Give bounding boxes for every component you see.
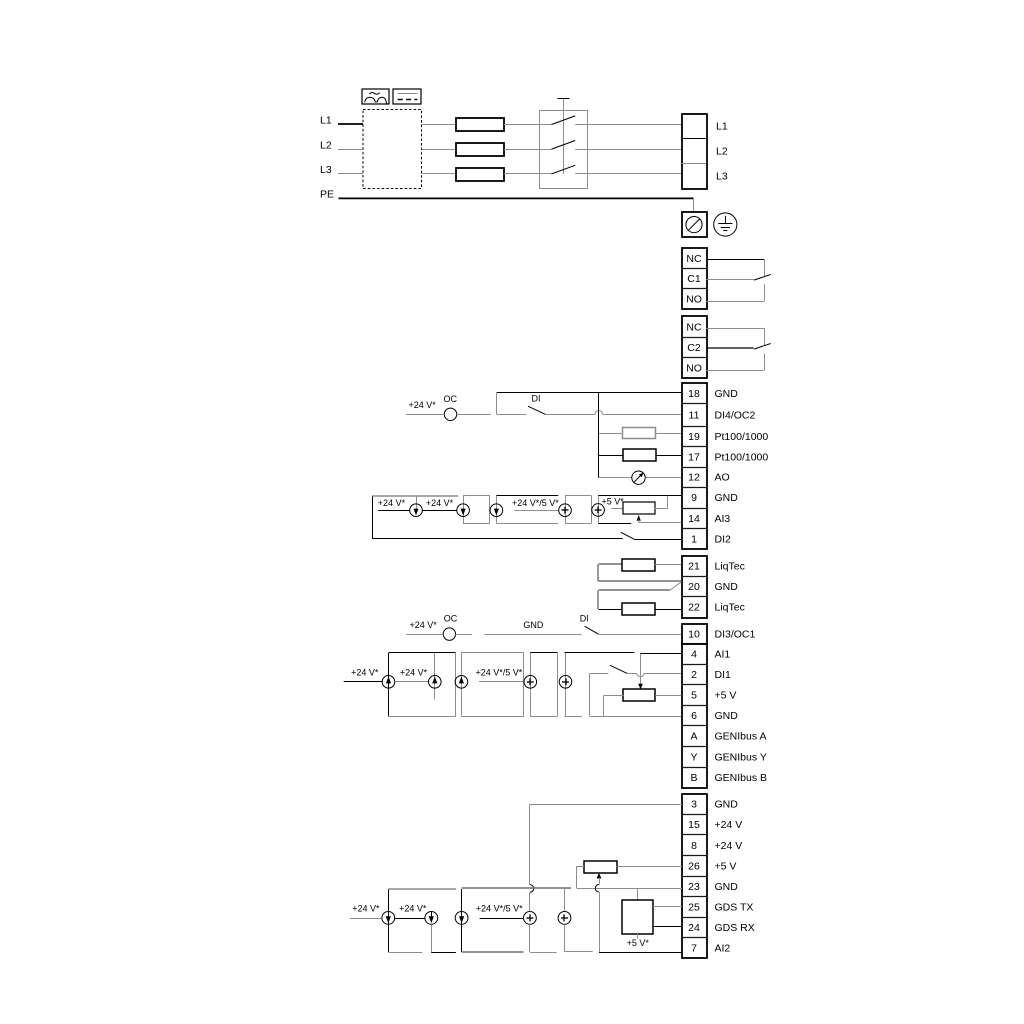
svg-text:OC: OC	[444, 394, 458, 404]
svg-text:A: A	[690, 731, 697, 743]
svg-text:+24 V*/5 V*: +24 V*/5 V*	[476, 668, 523, 678]
svg-text:5: 5	[691, 690, 697, 702]
svg-text:6: 6	[691, 710, 697, 722]
svg-text:L2: L2	[320, 139, 332, 151]
svg-text:18: 18	[688, 388, 700, 400]
svg-text:PE: PE	[320, 189, 334, 201]
svg-text:GND: GND	[715, 492, 739, 504]
svg-text:DI3/OC1: DI3/OC1	[715, 628, 756, 640]
svg-text:+24 V: +24 V	[715, 819, 743, 831]
svg-text:C2: C2	[687, 342, 701, 354]
svg-text:+24 V*: +24 V*	[400, 668, 428, 678]
svg-text:GND: GND	[715, 710, 739, 722]
svg-text:DI1: DI1	[715, 669, 732, 681]
svg-text:GND: GND	[715, 799, 739, 811]
svg-text:+5 V: +5 V	[715, 860, 737, 872]
svg-text:15: 15	[688, 819, 700, 831]
svg-text:7: 7	[691, 942, 697, 954]
svg-text:+24 V: +24 V	[715, 840, 743, 852]
svg-text:DI: DI	[532, 394, 541, 404]
svg-text:GENIbus A: GENIbus A	[715, 731, 767, 743]
svg-text:+5 V: +5 V	[715, 690, 737, 702]
svg-text:+24 V*/5 V*: +24 V*/5 V*	[512, 498, 559, 508]
svg-text:AI1: AI1	[715, 649, 731, 661]
svg-text:NC: NC	[686, 253, 702, 265]
svg-text:+24 V*: +24 V*	[351, 668, 379, 678]
svg-text:AO: AO	[715, 472, 730, 484]
svg-text:25: 25	[688, 901, 700, 913]
svg-text:NC: NC	[686, 321, 702, 333]
svg-text:8: 8	[691, 840, 697, 852]
svg-text:L1: L1	[320, 115, 332, 127]
svg-text:3: 3	[691, 799, 697, 811]
svg-text:10: 10	[688, 628, 700, 640]
svg-text:23: 23	[688, 881, 700, 893]
svg-text:Y: Y	[690, 751, 697, 763]
svg-text:22: 22	[688, 602, 700, 614]
svg-text:LiqTec: LiqTec	[715, 561, 745, 573]
svg-text:GENIbus Y: GENIbus Y	[715, 751, 767, 763]
svg-text:12: 12	[688, 472, 700, 484]
svg-text:GND: GND	[715, 881, 739, 893]
svg-text:4: 4	[691, 649, 697, 661]
svg-text:OC: OC	[444, 614, 458, 624]
svg-text:+24 V*/5 V*: +24 V*/5 V*	[476, 904, 523, 914]
svg-text:Pt100/1000: Pt100/1000	[715, 431, 769, 443]
svg-text:+24 V*: +24 V*	[352, 904, 380, 914]
svg-text:1: 1	[691, 533, 697, 545]
svg-text:C1: C1	[687, 273, 701, 285]
svg-text:GND: GND	[715, 581, 739, 593]
svg-text:11: 11	[689, 410, 700, 422]
svg-text:+24 V*: +24 V*	[410, 620, 438, 630]
svg-text:+24 V*: +24 V*	[426, 498, 454, 508]
svg-text:L3: L3	[320, 164, 332, 176]
svg-text:B: B	[690, 772, 697, 784]
svg-text:L2: L2	[716, 146, 728, 158]
svg-text:AI3: AI3	[715, 513, 731, 525]
svg-text:L3: L3	[716, 170, 728, 182]
svg-text:+24 V*: +24 V*	[378, 498, 406, 508]
svg-text:+5 V*: +5 V*	[602, 497, 625, 507]
svg-text:DI: DI	[580, 614, 589, 624]
svg-text:GDS TX: GDS TX	[715, 901, 754, 913]
svg-text:21: 21	[688, 561, 700, 573]
svg-text:NO: NO	[686, 294, 702, 306]
svg-text:L1: L1	[716, 121, 728, 133]
svg-text:24: 24	[688, 922, 700, 934]
svg-text:Pt100/1000: Pt100/1000	[715, 452, 769, 464]
svg-text:20: 20	[688, 581, 700, 593]
svg-text:2: 2	[691, 669, 697, 681]
svg-text:26: 26	[688, 860, 700, 872]
svg-text:+24 V*: +24 V*	[399, 904, 427, 914]
svg-text:GDS RX: GDS RX	[715, 922, 755, 934]
svg-text:NO: NO	[686, 363, 702, 375]
svg-text:9: 9	[691, 492, 697, 504]
svg-text:19: 19	[688, 431, 700, 443]
svg-text:+5 V*: +5 V*	[627, 938, 650, 948]
svg-text:GND: GND	[715, 388, 739, 400]
svg-text:14: 14	[688, 513, 700, 525]
svg-text:DI2: DI2	[715, 533, 732, 545]
svg-text:17: 17	[688, 452, 700, 464]
svg-text:GENIbus B: GENIbus B	[715, 772, 768, 784]
svg-text:DI4/OC2: DI4/OC2	[715, 410, 756, 422]
svg-text:+24 V*: +24 V*	[409, 400, 437, 410]
svg-text:LiqTec: LiqTec	[715, 602, 745, 614]
svg-text:AI2: AI2	[715, 942, 731, 954]
svg-text:GND: GND	[523, 620, 544, 630]
